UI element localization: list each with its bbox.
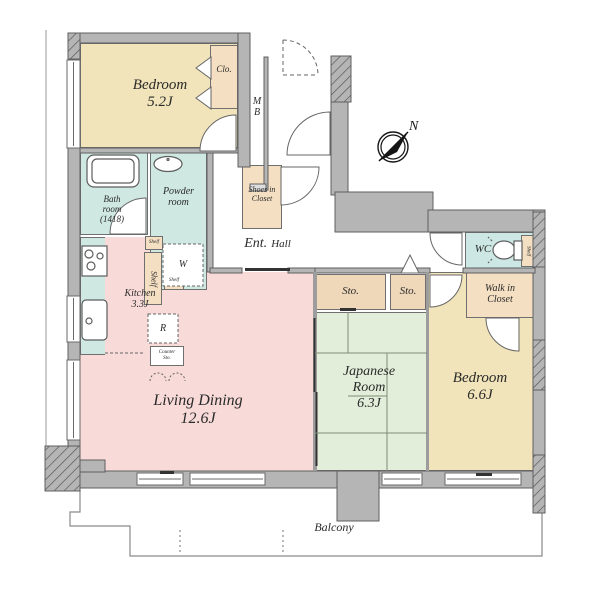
refrigerator-space-label: R bbox=[148, 314, 178, 343]
closet1-label: Clo. bbox=[210, 63, 238, 75]
wc-shelf-label: Shelf bbox=[521, 235, 534, 267]
counter-storage-label: Counter Sto. bbox=[150, 347, 184, 365]
storage1-label: Sto. bbox=[315, 282, 386, 300]
wc-label: WC bbox=[468, 240, 498, 258]
living-dining-label: Living Dining 12.6J bbox=[103, 386, 293, 434]
porch-dashed-door bbox=[283, 40, 318, 75]
room-living-upper bbox=[210, 272, 315, 355]
compass-north-label: N bbox=[408, 119, 419, 134]
meter-box-label: M B bbox=[247, 92, 267, 122]
bedroom2-label: Bedroom 6.6J bbox=[430, 364, 530, 410]
shoes-closet-label: Shoes in Closet bbox=[242, 180, 282, 210]
powder-room-label: Powder room bbox=[150, 182, 207, 212]
entrance-door bbox=[287, 112, 330, 155]
japanese-room-label: Japanese Room 6.3J bbox=[318, 355, 420, 421]
storage2-label: Sto. bbox=[390, 282, 426, 300]
entrance-hall-label: Ent. Hall bbox=[220, 236, 315, 258]
wc-door bbox=[430, 233, 462, 265]
compass-icon: N bbox=[378, 119, 419, 162]
shoes-closet-door bbox=[281, 167, 319, 205]
storage2-fold-mark bbox=[401, 255, 419, 273]
bathroom-label: Bath room (1418) bbox=[80, 188, 144, 230]
walk-in-closet-label: Walk in Closet bbox=[466, 278, 534, 310]
washer-space-label: W bbox=[163, 244, 203, 286]
bedroom1-label: Bedroom 5.2J bbox=[95, 72, 225, 116]
balcony-label: Balcony bbox=[296, 520, 372, 536]
shelf-tall-label: Shelf bbox=[144, 252, 162, 305]
floor-plan: N Bedroom 5.2J Clo. M B Bath room (1418)… bbox=[0, 0, 600, 600]
shelf-small-1-label: Shelf bbox=[145, 236, 163, 250]
